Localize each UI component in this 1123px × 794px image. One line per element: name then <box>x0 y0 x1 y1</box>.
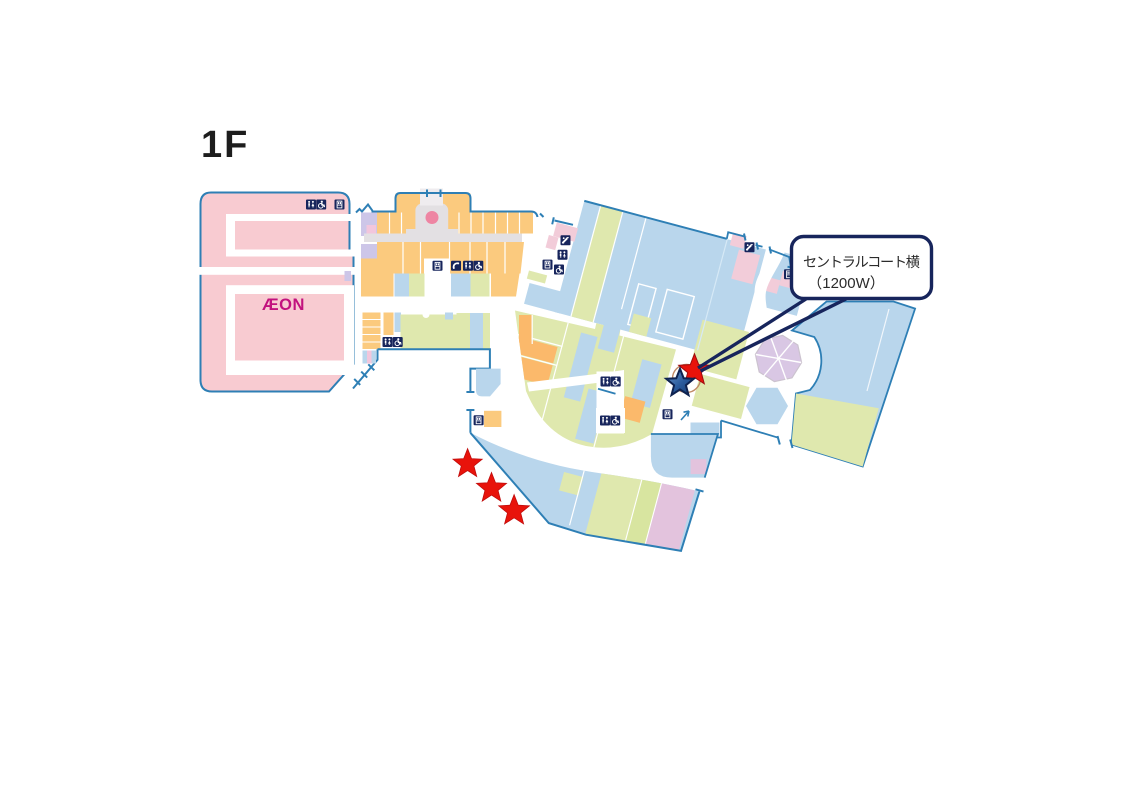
svg-text:（1200W）: （1200W） <box>807 275 885 292</box>
svg-text:ÆON: ÆON <box>262 296 305 314</box>
svg-text:1F: 1F <box>201 124 249 166</box>
svg-text:セントラルコート横: セントラルコート横 <box>803 255 920 271</box>
